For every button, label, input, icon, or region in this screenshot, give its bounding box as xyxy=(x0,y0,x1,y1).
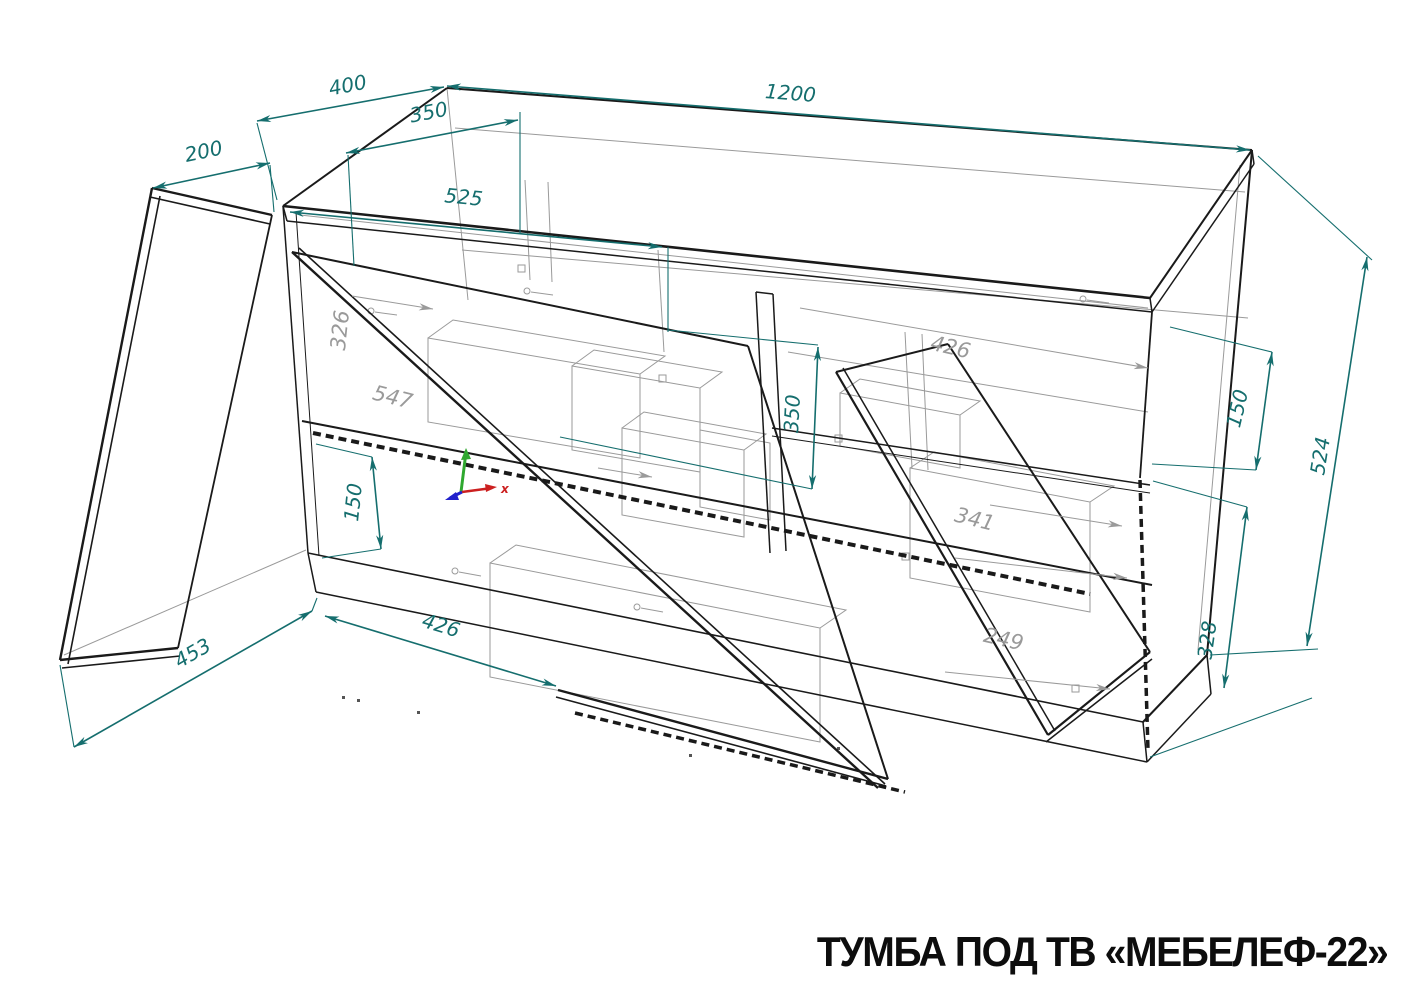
assembly-drawing: 200 400 350 1200 525 150 350 453 426 150… xyxy=(0,0,1403,992)
dim-524-label: 524 xyxy=(1305,435,1335,476)
dim-453-label: 453 xyxy=(170,633,215,673)
dim-341-gray-label: 341 xyxy=(952,503,997,536)
interior-gray-wireframe xyxy=(64,88,1248,757)
dim-200-label: 200 xyxy=(182,135,224,166)
drawing-title: ТУМБА ПОД ТВ «МЕБЕЛЕФ-22» xyxy=(817,928,1387,976)
dim-249-gray-label: 249 xyxy=(981,623,1025,655)
blueprint-page: 200 400 350 1200 525 150 350 453 426 150… xyxy=(0,0,1403,992)
open-right-flap-door xyxy=(836,344,1152,742)
dim-150-right-label: 150 xyxy=(1221,387,1253,430)
dimension-labels: 200 400 350 1200 525 150 350 453 426 150… xyxy=(170,70,1335,673)
dim-350-label: 350 xyxy=(408,97,450,128)
dim-350-mid-label: 350 xyxy=(779,394,805,433)
open-left-door xyxy=(60,188,272,668)
dim-426-bottom-label: 426 xyxy=(419,608,463,642)
dim-547-gray-label: 547 xyxy=(370,381,415,414)
dim-1200-label: 1200 xyxy=(764,79,817,107)
dimension-extension-lines xyxy=(60,112,1372,757)
open-center-flap-door xyxy=(292,248,888,788)
axis-x-label: x xyxy=(500,482,510,496)
dim-326-gray-label: 326 xyxy=(326,309,354,351)
dim-150-left-label: 150 xyxy=(339,482,367,522)
dimension-lines xyxy=(74,86,1367,747)
dim-525-label: 525 xyxy=(444,183,484,211)
dim-426-gray-label: 426 xyxy=(928,331,972,363)
dim-400-label: 400 xyxy=(327,70,369,101)
